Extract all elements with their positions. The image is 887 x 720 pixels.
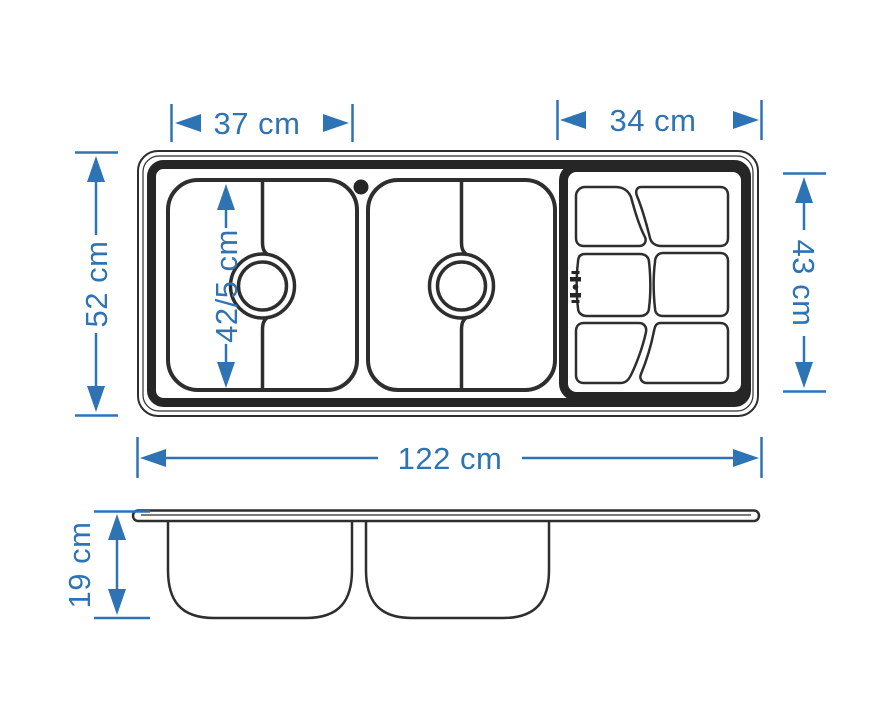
dim-42-5cm-arrow-down bbox=[217, 362, 235, 388]
drainboard bbox=[564, 168, 746, 397]
dim-42-5cm-label: 42/5 cm bbox=[209, 229, 244, 343]
dim-52cm-arrow-up bbox=[87, 156, 105, 182]
dimension-43cm: 43 cm bbox=[783, 174, 826, 392]
brand-mark-dot bbox=[573, 284, 579, 290]
dim-19cm-label: 19 cm bbox=[62, 522, 97, 609]
drainboard-cell-bottom-right bbox=[640, 323, 728, 383]
dim-122cm-label: 122 cm bbox=[398, 441, 503, 476]
drainboard-cell-middle-right bbox=[654, 253, 728, 316]
side-view bbox=[133, 511, 759, 619]
dimension-42-5cm: 42/5 cm bbox=[209, 184, 244, 388]
dimension-37cm: 37 cm bbox=[172, 104, 353, 142]
dimension-122cm: 122 cm bbox=[138, 437, 762, 478]
brand-mark-bar bbox=[570, 277, 581, 282]
dim-37cm-arrow-right bbox=[323, 114, 349, 132]
left-bowl-divider-bottom bbox=[263, 317, 269, 388]
right-bowl-divider-bottom bbox=[462, 317, 468, 388]
dim-122cm-arrow-left bbox=[140, 449, 166, 467]
dim-52cm-label: 52 cm bbox=[79, 241, 114, 328]
right-drain bbox=[438, 262, 486, 310]
dim-122cm-arrow-right bbox=[733, 449, 759, 467]
right-bowl-divider-top bbox=[462, 182, 468, 255]
side-countertop bbox=[133, 511, 759, 522]
dim-19cm-arrow-down bbox=[108, 589, 126, 615]
dim-19cm-arrow-up bbox=[108, 514, 126, 540]
drainboard-cell-top-right bbox=[636, 187, 728, 246]
drawing-svg: 37 cm 34 cm 52 cm 43 cm 42/5 cm bbox=[0, 0, 887, 720]
dim-37cm-arrow-left bbox=[175, 114, 201, 132]
left-bowl-divider-top bbox=[263, 182, 269, 255]
side-left-bowl bbox=[168, 521, 352, 618]
drainboard-cell-bottom-left bbox=[576, 323, 646, 383]
dimension-19cm: 19 cm bbox=[62, 512, 150, 619]
dimension-52cm: 52 cm bbox=[75, 153, 118, 416]
dim-34cm-label: 34 cm bbox=[610, 103, 697, 138]
sink-dimension-drawing: 37 cm 34 cm 52 cm 43 cm 42/5 cm bbox=[0, 0, 887, 720]
drainboard-cell-middle-left bbox=[577, 254, 651, 316]
side-right-bowl bbox=[366, 521, 549, 618]
dim-43cm-arrow-down bbox=[795, 362, 813, 388]
dim-43cm-label: 43 cm bbox=[786, 240, 821, 327]
faucet-hole bbox=[354, 180, 369, 195]
left-drain bbox=[239, 262, 287, 310]
brand-mark-icon bbox=[570, 271, 581, 303]
brand-mark-bar bbox=[570, 293, 581, 298]
dim-43cm-arrow-up bbox=[795, 177, 813, 203]
dim-52cm-arrow-down bbox=[87, 386, 105, 412]
dimension-34cm: 34 cm bbox=[558, 100, 762, 140]
brand-mark-bar bbox=[572, 300, 580, 303]
dim-34cm-arrow-right bbox=[733, 111, 759, 129]
dim-37cm-label: 37 cm bbox=[214, 106, 301, 141]
dim-42-5cm-arrow-up bbox=[217, 184, 235, 210]
drainboard-cell-top-left bbox=[576, 187, 646, 246]
brand-mark-bar bbox=[572, 271, 580, 274]
dim-34cm-arrow-left bbox=[560, 111, 586, 129]
